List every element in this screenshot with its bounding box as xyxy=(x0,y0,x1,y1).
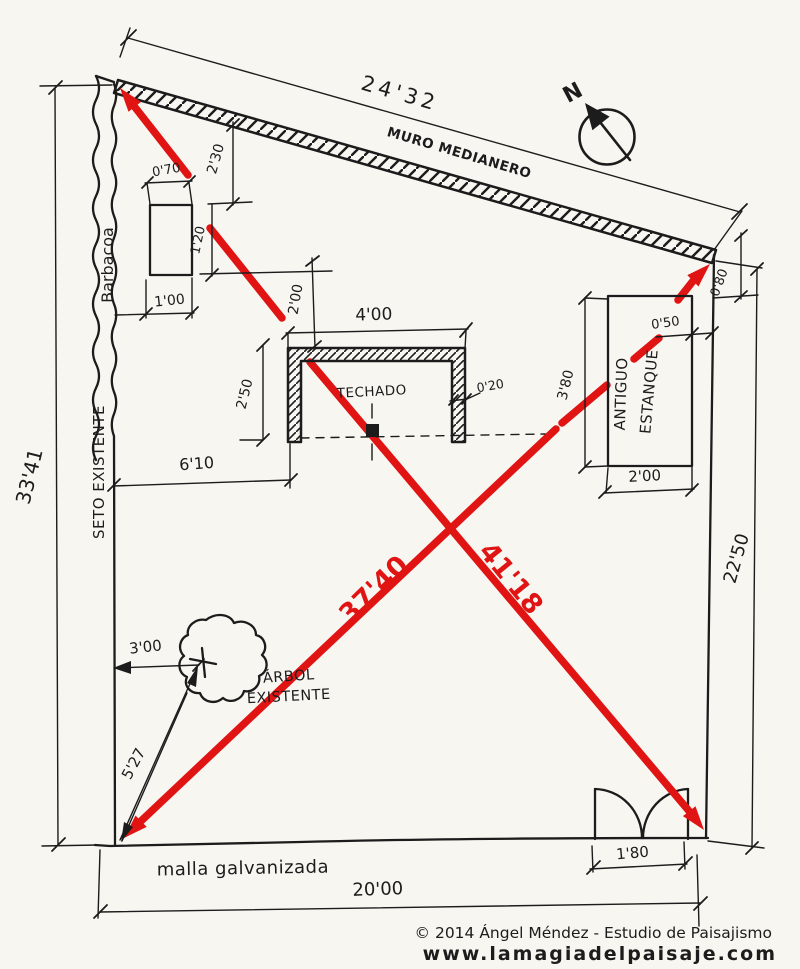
barbecue-width-text: 1'00 xyxy=(154,291,186,310)
plan-drawing-canvas: SETO EXISTENTE 33'41 MURO MEDIANERO 24'3… xyxy=(0,0,800,969)
footer-credits: © 2014 Ángel Méndez - Estudio de Paisaji… xyxy=(415,923,777,965)
roofed-area-width-text: 4'00 xyxy=(355,304,393,325)
fence-label: malla galvanizada xyxy=(157,856,330,880)
fence-length-text: 20'00 xyxy=(352,878,403,901)
pond-width-text: 2'00 xyxy=(628,466,662,486)
tree-label-line1: ÁRBOL xyxy=(262,666,315,687)
site-plan-sketch: SETO EXISTENTE 33'41 MURO MEDIANERO 24'3… xyxy=(0,0,800,969)
website-text: www.lamagiadelpaisaje.com xyxy=(423,943,777,965)
paper-background xyxy=(0,0,800,969)
pond-label-line1: ANTIGUO xyxy=(611,357,632,431)
roofed-area-hedge-gap-text: 6'10 xyxy=(179,453,215,474)
barbecue-label: Barbacoa xyxy=(98,227,117,303)
roof-post xyxy=(366,424,379,437)
tree-hedge-gap-text: 3'00 xyxy=(128,636,162,657)
copyright-text: © 2014 Ángel Méndez - Estudio de Paisaji… xyxy=(415,923,772,942)
hedge-label: SETO EXISTENTE xyxy=(90,405,108,539)
gate-width-text: 1'80 xyxy=(615,843,649,864)
